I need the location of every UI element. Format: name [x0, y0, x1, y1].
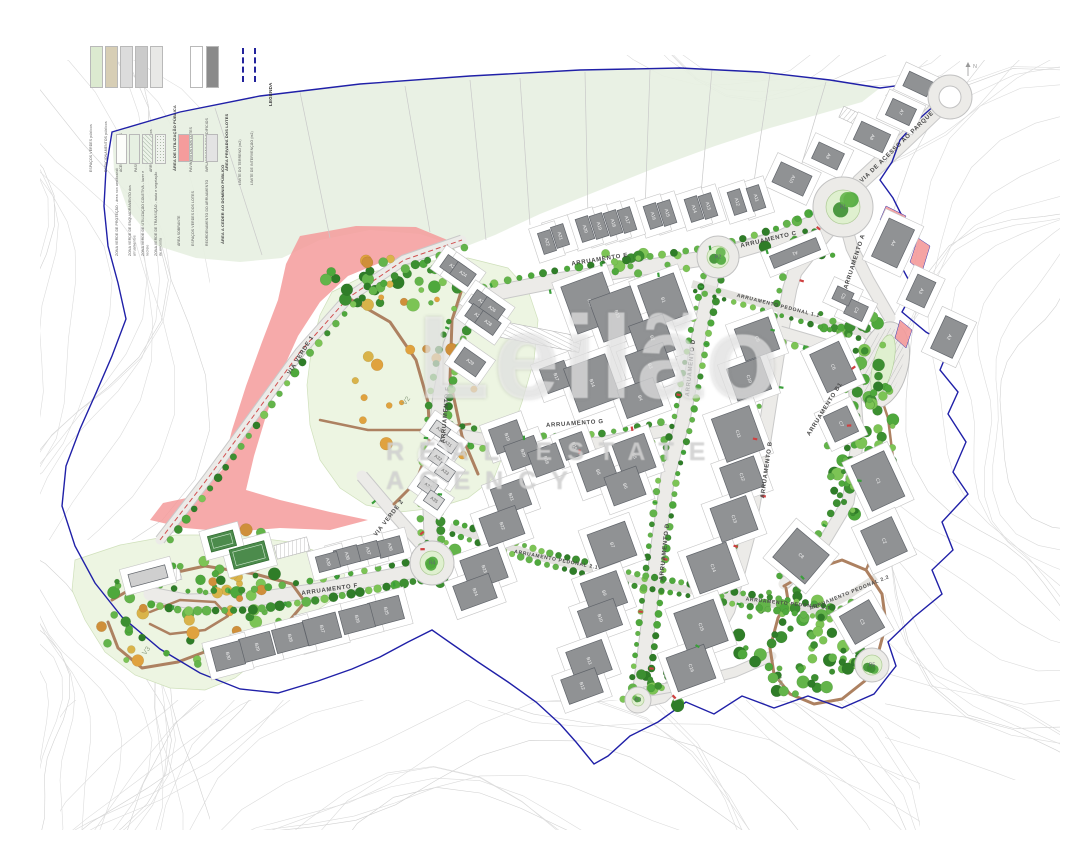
legend-swatch [206, 46, 219, 88]
legend: ESPAÇOS VERDES públicosESTACIONAMENTOS p… [86, 38, 296, 258]
legend-title: LEGENDA [268, 46, 278, 106]
legend-swatch [155, 134, 166, 164]
legend-group-heading: ÁREA A CEDER AO DOMÍNIO PÚBLICO [220, 134, 230, 244]
park-label-V4: V4 [775, 677, 783, 687]
roundabout-R5: R5 [855, 648, 889, 682]
roundabout [928, 75, 972, 119]
legend-item-label: ZONA VERDE DE TRANSIÇÃO - mata e vegetaç… [154, 168, 167, 256]
legend-item-label: ZONA VERDE DE ENQUADRAMENTO dos arruamen… [128, 168, 141, 256]
roundabout-R2: R2 [697, 236, 739, 278]
legend-boundary-line [242, 48, 244, 82]
legend-swatch [90, 46, 103, 88]
roundabout-R1: R1 [813, 177, 873, 237]
roundabout-label: R4 [429, 561, 436, 567]
svg-text:N: N [973, 64, 977, 70]
legend-swatch [129, 134, 140, 164]
legend-swatch [206, 134, 218, 162]
roundabout-label: R2 [715, 255, 722, 261]
legend-item-label: REORDENAMENTO DO ARRUAMENTO [205, 166, 219, 246]
legend-swatch [142, 134, 153, 164]
site-plan-sheet: A1A2A3A4A7A8A9A10A11A12A13A14A15A16A17A1… [0, 0, 1080, 855]
legend-swatch [190, 46, 203, 88]
roundabout-R3: R3 [625, 687, 651, 713]
legend-swatch [178, 134, 190, 162]
roundabout-label: R5 [869, 663, 876, 669]
legend-swatch [192, 134, 204, 162]
legend-swatch [120, 46, 133, 88]
legend-item-label: ESPAÇOS VERDES DOS LOTES [191, 166, 205, 246]
legend-swatch [116, 134, 127, 164]
legend-item-label: LIMITE DE INTERVENÇÃO (m2) [250, 90, 260, 185]
legend-boundary-line [254, 48, 256, 82]
legend-item-label: ÁREA SOBRANTE [177, 166, 191, 246]
legend-item-label: ZONA VERDE DE PROTEÇÃO - área non aedifi… [115, 168, 128, 256]
legend-swatch [105, 46, 118, 88]
legend-item-label: ESPAÇOS VERDES públicos [89, 92, 104, 172]
north-arrow-icon: N [966, 62, 978, 76]
legend-swatch [150, 46, 163, 88]
roundabout-label: R3 [635, 698, 642, 704]
roundabout-label: R1 [840, 205, 847, 211]
legend-item-label: ZONA VERDE DE UTILIZAÇÃO COLETIVA - laze… [141, 168, 154, 256]
legend-swatch [135, 46, 148, 88]
roundabout-R4: R4 [410, 541, 454, 585]
legend-item-label: LIMITE DO TERRENO (m2) [238, 90, 248, 185]
